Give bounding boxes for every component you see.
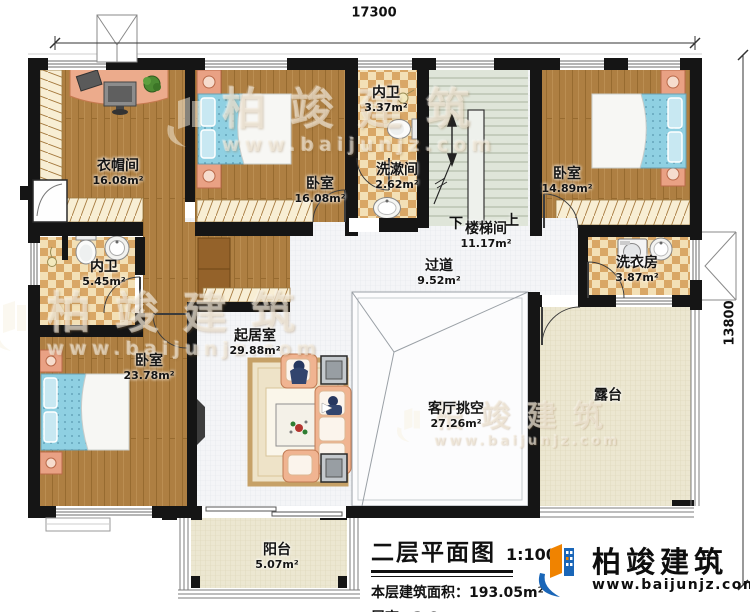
dimension-height: 13800 [723, 300, 738, 345]
shower-box [33, 180, 67, 222]
light-fixture [48, 258, 57, 267]
side-roof [702, 232, 736, 300]
company-url: www.baijunjz.com [592, 577, 750, 593]
stair-up-label: 上 [505, 210, 519, 230]
floorplan-drawing [0, 0, 750, 612]
void-area [352, 292, 528, 506]
company-name: 柏竣建筑 [592, 547, 750, 577]
floorplan-page: 柏竣建筑 www.baijunjz.com 柏竣建筑 www.baijunjz.… [0, 0, 750, 612]
title-underline [371, 570, 513, 577]
plant [143, 76, 161, 92]
stair-down-label: 下 [449, 213, 463, 233]
company-logo-icon [528, 541, 584, 599]
dimension-width: 17300 [351, 6, 396, 21]
light-fixture [398, 93, 408, 103]
plan-title: 二层平面图 [371, 533, 496, 567]
tv [197, 399, 205, 445]
washroom-fixtures [374, 198, 401, 219]
sofa-set [250, 354, 351, 484]
company-logo: 柏竣建筑 www.baijunjz.com [528, 541, 750, 599]
floor-height-line: 层高：3.6m [371, 607, 557, 612]
